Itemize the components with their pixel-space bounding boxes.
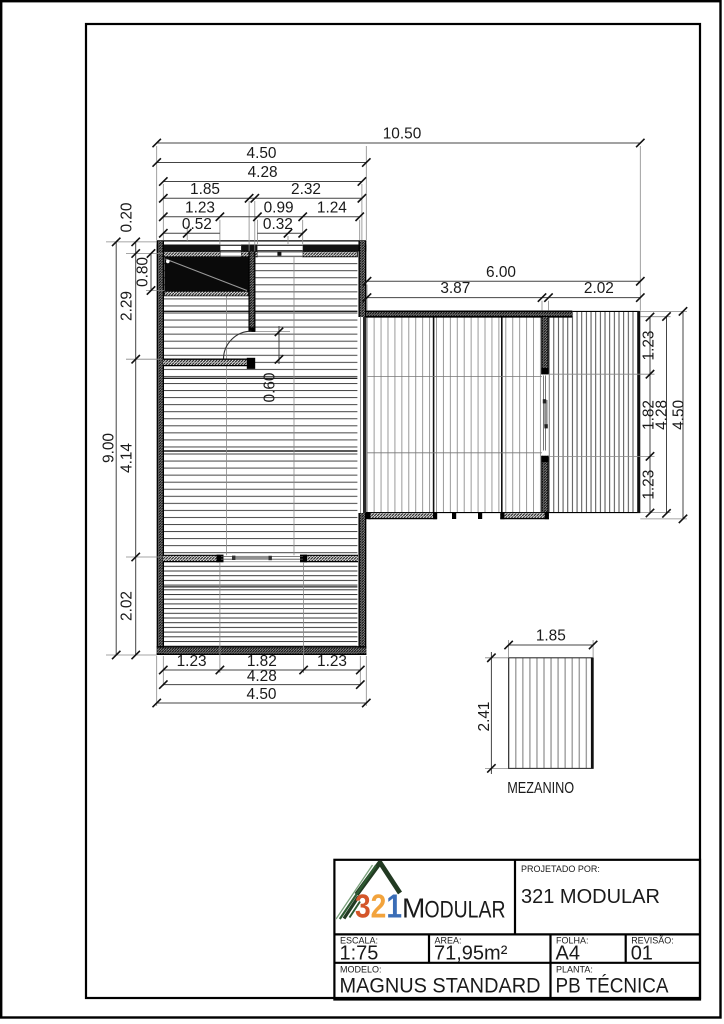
svg-text:1.85: 1.85	[536, 628, 566, 645]
svg-text:6.00: 6.00	[486, 264, 516, 281]
svg-text:4.50: 4.50	[247, 145, 277, 162]
svg-text:0.52: 0.52	[182, 216, 212, 233]
svg-text:4.28: 4.28	[653, 400, 670, 430]
svg-text:321 MODULAR: 321 MODULAR	[521, 886, 660, 908]
svg-text:3.87: 3.87	[440, 280, 470, 297]
svg-text:A4: A4	[556, 943, 580, 965]
svg-text:0.99: 0.99	[264, 199, 294, 216]
svg-text:0.60: 0.60	[262, 373, 279, 403]
svg-text:4.28: 4.28	[248, 164, 278, 181]
svg-text:1.23: 1.23	[317, 653, 347, 670]
svg-text:2.02: 2.02	[584, 280, 614, 297]
svg-text:PROJETADO POR:: PROJETADO POR:	[521, 864, 600, 874]
svg-text:1.24: 1.24	[317, 199, 347, 216]
svg-text:321: 321	[355, 888, 402, 925]
svg-text:1.23: 1.23	[641, 331, 658, 361]
svg-text:ODULAR: ODULAR	[425, 897, 506, 924]
svg-text:2.32: 2.32	[291, 181, 321, 198]
svg-text:1:75: 1:75	[340, 943, 379, 965]
svg-text:1.23: 1.23	[177, 653, 207, 670]
svg-text:10.50: 10.50	[383, 126, 422, 143]
svg-text:PB TÉCNICA: PB TÉCNICA	[556, 973, 670, 998]
svg-text:1.23: 1.23	[185, 199, 215, 216]
svg-text:01: 01	[631, 943, 653, 965]
svg-text:M: M	[402, 893, 425, 924]
svg-text:2.41: 2.41	[476, 702, 493, 732]
svg-text:2.02: 2.02	[119, 591, 136, 621]
svg-text:71,95m²: 71,95m²	[434, 943, 508, 965]
svg-text:1.85: 1.85	[190, 181, 220, 198]
svg-text:2.29: 2.29	[119, 291, 136, 321]
svg-text:1.23: 1.23	[641, 470, 658, 500]
svg-text:4.50: 4.50	[670, 400, 687, 430]
svg-text:9.00: 9.00	[101, 433, 118, 463]
svg-text:0.32: 0.32	[263, 216, 293, 233]
svg-text:4.14: 4.14	[119, 443, 136, 473]
svg-text:MAGNUS STANDARD: MAGNUS STANDARD	[340, 974, 541, 998]
svg-text:0.80: 0.80	[135, 257, 152, 287]
svg-text:4.28: 4.28	[247, 668, 277, 685]
svg-text:4.50: 4.50	[247, 686, 277, 703]
svg-text:0.20: 0.20	[119, 203, 136, 233]
svg-text:MEZANINO: MEZANINO	[507, 780, 574, 797]
